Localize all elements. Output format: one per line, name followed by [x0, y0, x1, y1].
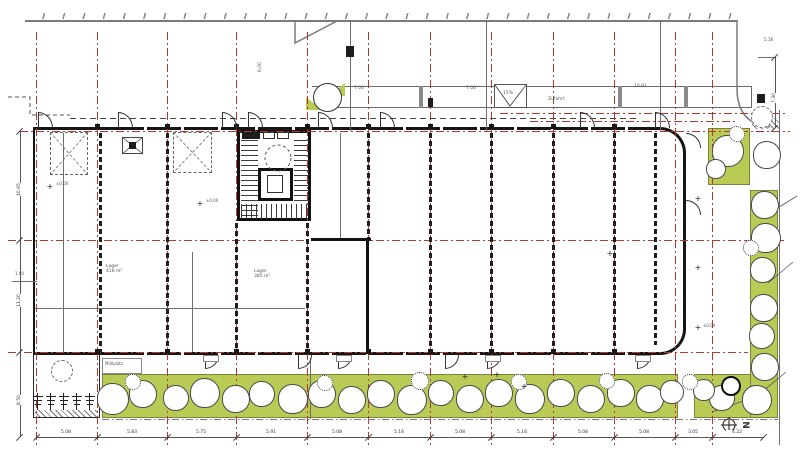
partition-wall [490, 133, 493, 352]
tree [547, 379, 575, 407]
reference-line [12, 281, 37, 282]
dimension-value: 7.30 [772, 93, 777, 103]
solid-block [129, 142, 136, 149]
annotation-label: Lager 385 m² [254, 269, 270, 279]
annotation-label: 6.00 [258, 62, 263, 72]
tree [278, 384, 308, 414]
column-marker [551, 124, 556, 129]
annotation-label: 7.00 [354, 86, 364, 91]
tree [338, 386, 366, 414]
tree [751, 191, 779, 219]
column-marker [165, 124, 170, 129]
level-marker: + [46, 183, 54, 191]
level-marker: + [196, 200, 204, 208]
column-marker [489, 349, 494, 354]
dimension-value: 4.22 [726, 430, 748, 435]
shrub [125, 374, 141, 390]
column-marker [612, 349, 617, 354]
grid-line-horizontal [20, 131, 790, 132]
partition-wall [429, 133, 432, 352]
tree [577, 385, 605, 413]
tree-proposed [51, 360, 73, 382]
shrub [317, 375, 333, 391]
tree [742, 385, 772, 415]
dimension-line-bottom [36, 437, 763, 438]
solid-block [757, 94, 765, 103]
tree [749, 323, 775, 349]
tree [750, 294, 778, 322]
reference-line [192, 252, 193, 352]
tree-highlighted [721, 376, 741, 396]
annotation-label: 7.00 [466, 86, 476, 91]
partition-wall [654, 133, 657, 345]
partition-wall [166, 133, 169, 352]
level-marker: + [461, 373, 469, 381]
grid-line-horizontal [8, 352, 748, 353]
solid-block [428, 98, 433, 107]
dimension-value: 5.16 [511, 430, 533, 435]
level-marker: + [493, 371, 501, 379]
dimension-line-left [20, 131, 21, 437]
plot-edge-line [102, 419, 778, 420]
tree [190, 378, 220, 408]
column-marker [305, 349, 310, 354]
canopy-dashed-line [70, 118, 640, 119]
boundary-notch [295, 21, 337, 43]
tree [222, 385, 250, 413]
tree [97, 383, 129, 415]
annotation-label: Zufahrt [548, 97, 565, 102]
annotation-label: Müllplatz [105, 362, 123, 367]
ramp-pillar [419, 86, 423, 108]
shrub [682, 374, 698, 390]
column-marker [428, 124, 433, 129]
dimension-value: 11.20 [17, 294, 22, 307]
dimension-value: 3.05 [682, 430, 704, 435]
column-marker [489, 124, 494, 129]
annotation-label: Lager 416 m² [106, 264, 122, 274]
tree [428, 380, 454, 406]
dimension-value: 5.08 [572, 430, 594, 435]
tree [751, 353, 779, 381]
entry-stoop [485, 355, 501, 362]
solid-block [346, 46, 354, 57]
spiral-opening-circle [265, 145, 291, 171]
dimension-value: 5.08 [326, 430, 348, 435]
column-marker [234, 349, 239, 354]
tree [456, 385, 484, 413]
level-marker: + [694, 324, 702, 332]
annotation-label: ±0.00 [56, 182, 68, 187]
tree [163, 385, 189, 411]
column-marker [95, 124, 100, 129]
level-marker: + [520, 383, 528, 391]
level-marker: + [694, 264, 702, 272]
shrub [729, 126, 745, 142]
reference-line [486, 21, 487, 131]
level-marker: + [606, 250, 614, 258]
grid-line-horizontal [530, 121, 737, 122]
tree [750, 257, 776, 283]
ramp-pillar [618, 86, 622, 108]
grid-line-horizontal [500, 113, 786, 114]
dimension-value: 5.16 [388, 430, 410, 435]
reference-line [35, 308, 305, 309]
tree [367, 380, 395, 408]
interior-wall [311, 238, 371, 241]
solid-block [242, 132, 260, 139]
column-marker [428, 349, 433, 354]
partition-wall [613, 133, 616, 352]
shrub [743, 240, 759, 256]
tree-proposed [751, 106, 773, 128]
locker-box [263, 132, 275, 139]
dimension-value: 5.08 [55, 430, 77, 435]
level-marker: + [694, 195, 702, 203]
planting-symbol [58, 393, 70, 410]
annotation-label: 15% [503, 91, 513, 96]
column-marker [305, 124, 310, 129]
column-marker [165, 349, 170, 354]
column-marker [366, 124, 371, 129]
entry-stoop [336, 355, 352, 362]
tree [706, 159, 726, 179]
partition-wall [99, 133, 102, 352]
tree [485, 379, 513, 407]
planting-symbol [32, 393, 44, 410]
reference-line [340, 133, 341, 238]
entry-stoop [635, 355, 651, 362]
partition-wall [552, 133, 555, 352]
interior-wall [366, 238, 369, 352]
skylight-diagonals [50, 132, 212, 175]
partition-wall [235, 223, 238, 352]
dimension-value: 5.08 [449, 430, 471, 435]
grid-line-vertical [36, 32, 37, 445]
column-marker [95, 349, 100, 354]
ramp-pillar [684, 86, 688, 108]
partition-wall [367, 133, 370, 238]
column-marker [366, 349, 371, 354]
planting-symbol [84, 393, 96, 410]
planting-symbol [45, 393, 57, 410]
site-plan-drawing: N +++++++++±0.00±0.00±0.00Lager 416 m²La… [0, 0, 800, 461]
dimension-value: 5.91 [260, 430, 282, 435]
dimension-value: 5.08 [633, 430, 655, 435]
partition-wall [306, 223, 309, 352]
tree [249, 381, 275, 407]
locker-box [277, 132, 289, 139]
annotation-label: 10.81 [634, 84, 647, 89]
reference-line [63, 133, 64, 352]
dimension-value: 5.75 [190, 430, 212, 435]
grid-line-vertical [97, 32, 98, 445]
dimension-value: 8.50 [17, 395, 22, 405]
annotation-label: ±0.00 [206, 199, 218, 204]
tree [753, 141, 781, 169]
shrub [411, 372, 429, 390]
shrub [599, 373, 615, 389]
tree [660, 380, 684, 404]
dimension-value: 10.95 [17, 183, 22, 196]
reference-line [350, 21, 351, 131]
annotation-label: ±0.00 [703, 324, 715, 329]
dimension-value: 5.83 [121, 430, 143, 435]
annotation-label: 5.18 [764, 38, 773, 43]
column-marker [551, 349, 556, 354]
grid-line-horizontal [8, 240, 786, 241]
planting-symbol [71, 393, 83, 410]
column-marker [612, 124, 617, 129]
entry-stoop [203, 355, 219, 362]
